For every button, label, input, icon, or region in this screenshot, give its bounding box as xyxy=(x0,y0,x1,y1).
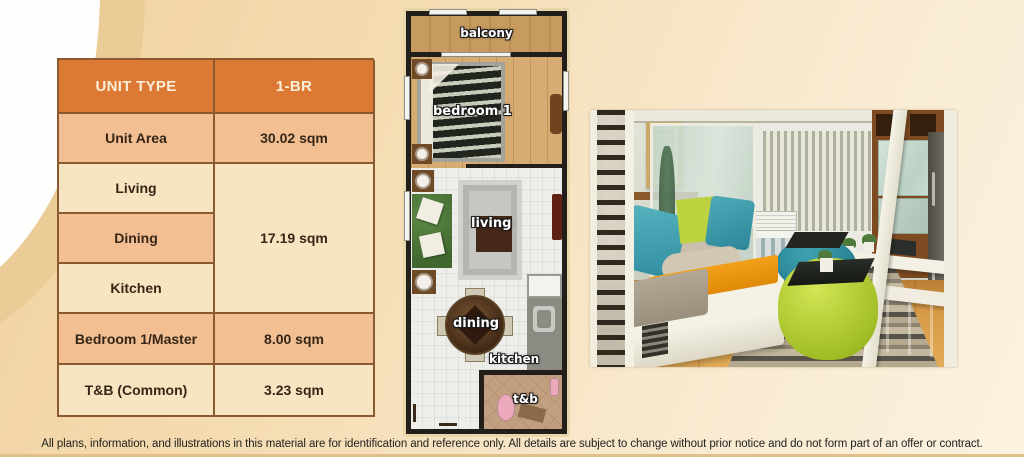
row-bedroom-label: Bedroom 1/Master xyxy=(59,314,215,365)
row-bedroom-value: 8.00 sqm xyxy=(215,314,375,365)
tv-console xyxy=(552,194,562,240)
window xyxy=(404,191,410,241)
bathroom-sink xyxy=(550,378,559,396)
throw-pillow xyxy=(705,195,756,251)
photo-right-wall xyxy=(944,110,957,367)
header-unit-value: 1-BR xyxy=(215,60,375,114)
lamp-icon xyxy=(415,147,429,161)
row-kitchen-label: Kitchen xyxy=(59,264,215,314)
divider-post xyxy=(590,110,597,367)
unit-info-table: UNIT TYPE 1-BR Unit Area 30.02 sqm Livin… xyxy=(57,58,374,417)
divider-post xyxy=(625,110,634,367)
disclaimer-text: All plans, information, and illustration… xyxy=(0,438,1024,450)
window xyxy=(563,71,569,111)
slatted-divider xyxy=(590,110,634,367)
label-tb: t&b xyxy=(513,392,538,406)
floorplan: balcony bedroom 1 living dining kitchen … xyxy=(403,8,570,437)
nightstand-lamp xyxy=(412,144,432,164)
daybed-storage xyxy=(642,322,668,359)
plant-icon xyxy=(415,173,431,189)
tb-wall xyxy=(479,370,562,375)
window xyxy=(429,9,467,15)
row-living-label: Living xyxy=(59,164,215,214)
row-living-dining-kitchen-value: 17.19 sqm xyxy=(215,164,375,314)
shelf-decor xyxy=(890,239,916,257)
sofa xyxy=(412,194,452,268)
sofa-cushion xyxy=(419,232,445,258)
row-unit-area-value: 30.02 sqm xyxy=(215,114,375,164)
row-tb-value: 3.23 sqm xyxy=(215,365,375,417)
window xyxy=(499,9,537,15)
label-living: living xyxy=(471,216,511,231)
refrigerator xyxy=(527,274,562,298)
door-mark xyxy=(413,404,416,422)
bath-mat xyxy=(518,403,547,423)
label-dining: dining xyxy=(453,316,499,331)
label-balcony: balcony xyxy=(460,26,513,40)
planter xyxy=(412,170,434,192)
air-conditioner xyxy=(755,211,797,231)
label-bedroom-1: bedroom 1 xyxy=(433,104,512,119)
row-dining-label: Dining xyxy=(59,214,215,264)
plant-pot xyxy=(864,242,874,252)
bed-fold xyxy=(429,64,459,94)
divider-slats xyxy=(597,110,625,367)
floorplan-walls: balcony bedroom 1 living dining kitchen … xyxy=(406,11,567,434)
interior-photo xyxy=(590,110,957,367)
door-mark xyxy=(439,423,457,426)
row-tb-label: T&B (Common) xyxy=(59,365,215,417)
sofa-cushion xyxy=(416,197,444,225)
bedroom-bench xyxy=(550,94,562,134)
row-unit-area-label: Unit Area xyxy=(59,114,215,164)
plant-icon xyxy=(415,273,433,291)
tb-wall xyxy=(479,370,484,429)
floorplan-interior: balcony bedroom 1 living dining kitchen … xyxy=(411,16,562,429)
plant-pot xyxy=(820,258,833,272)
window xyxy=(404,76,410,120)
appliance-handle xyxy=(932,172,935,206)
header-unit-type: UNIT TYPE xyxy=(59,60,215,114)
nightstand-lamp xyxy=(412,59,432,79)
label-kitchen: kitchen xyxy=(489,352,539,366)
planter xyxy=(412,270,436,294)
pouf-tray xyxy=(785,232,848,248)
lamp-icon xyxy=(415,62,429,76)
kitchen-sink xyxy=(533,306,555,332)
